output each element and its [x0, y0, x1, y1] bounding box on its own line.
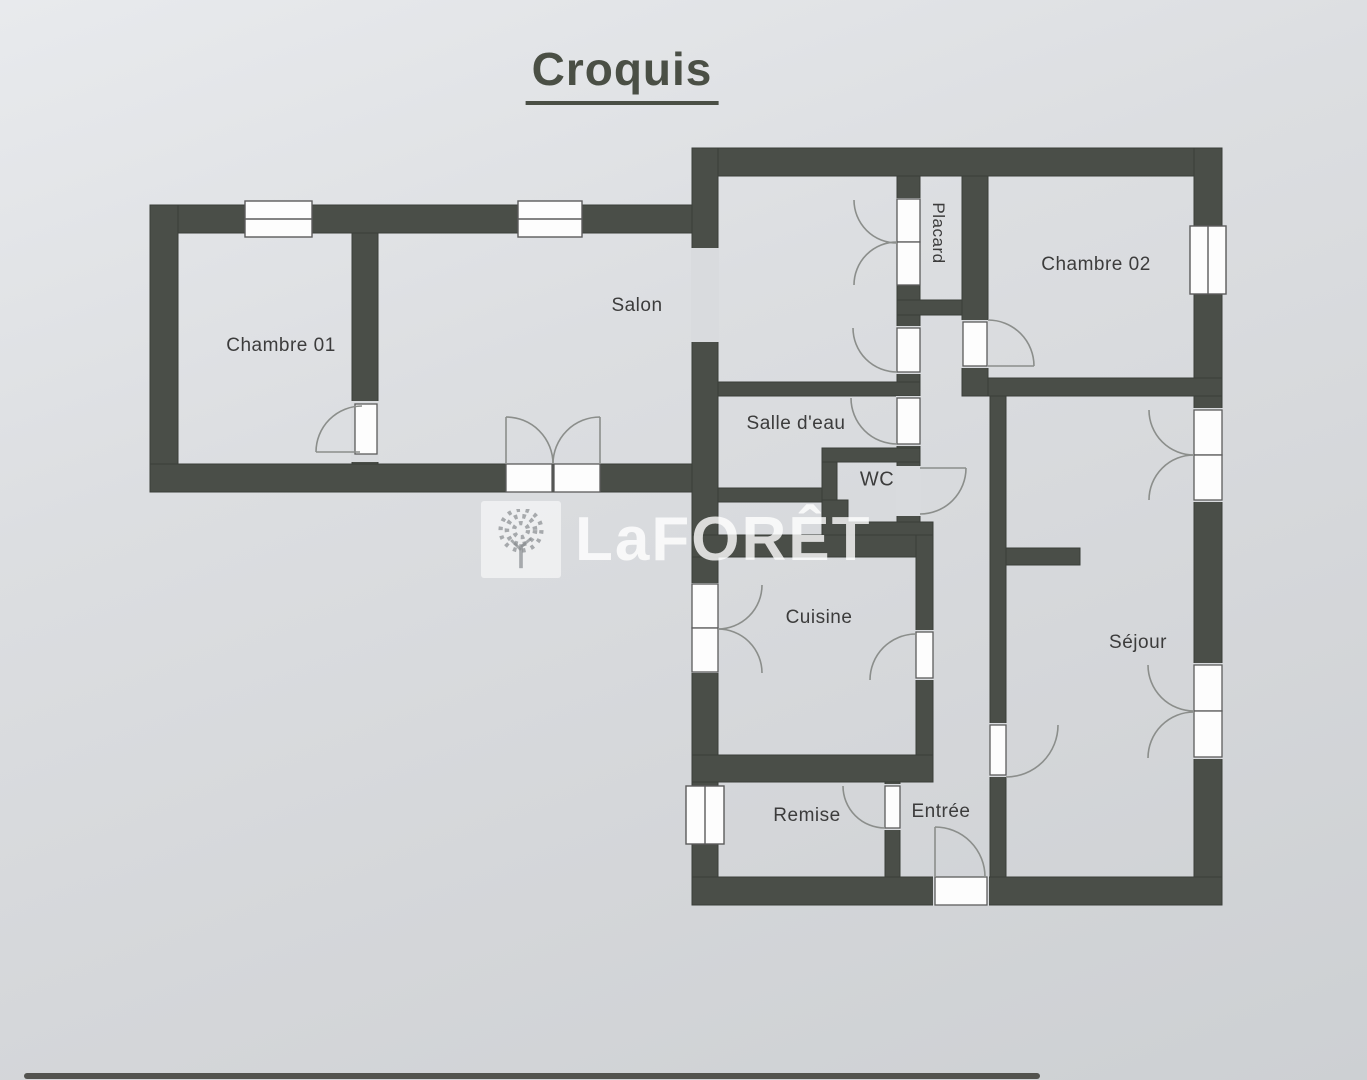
wall-salledeau-bottom: [718, 488, 822, 502]
door-arc-sejour-d1-upper: [1149, 410, 1194, 455]
room-label-chambre-02: Chambre 02: [1041, 254, 1151, 276]
door-leaf-cuisine-hall: [916, 632, 933, 678]
window-chambre01: [245, 201, 312, 237]
wall-cuisine-bottom: [692, 755, 933, 782]
door-arc-placard-upper: [854, 200, 897, 243]
door-arc-cuisine-french-upper: [718, 585, 762, 629]
door-leaf-sejour-d1-lower: [1194, 455, 1222, 500]
wall-sejour-stub: [1006, 548, 1080, 565]
door-leaf-salledeau: [897, 398, 920, 444]
door-leaf-sejour-hall: [990, 725, 1006, 775]
room-label-cuisine: Cuisine: [786, 607, 853, 629]
window-remise: [686, 786, 724, 844]
door-leaf-salon-french-left: [506, 464, 552, 492]
wall-chambre02-sejour: [988, 378, 1222, 396]
wall-left-wing-bottom: [150, 464, 700, 492]
wall-wc-left: [822, 462, 837, 506]
room-label-chambre-01: Chambre 01: [226, 335, 336, 357]
window-salon: [518, 201, 582, 237]
door-leaf-placard-lower: [897, 242, 920, 285]
wall-left-wing-left: [150, 205, 178, 492]
room-label-entree: Entrée: [912, 801, 971, 823]
floor-plan-drawing: [0, 0, 1367, 1080]
door-arc-hall-salon: [853, 328, 897, 372]
wall-wc-corner: [822, 500, 848, 535]
photo-bottom-edge-shadow: [24, 1073, 1040, 1079]
door-leaf-sejour-d1-upper: [1194, 410, 1222, 455]
door-arc-wc: [920, 468, 966, 514]
door-arc-sejour-d2-upper: [1148, 665, 1194, 711]
opening-wc-door: [896, 466, 921, 516]
window-chambre02: [1190, 226, 1226, 294]
door-leaf-cuisine-french-lower: [692, 628, 718, 672]
door-leaf-chambre02: [963, 322, 987, 366]
room-label-remise: Remise: [773, 805, 840, 827]
wall-salledeau-top: [718, 382, 920, 396]
door-leaf-entree-front: [935, 877, 987, 905]
door-leaf-hall-salon: [897, 328, 920, 372]
room-label-wc: WC: [860, 469, 894, 492]
door-arc-cuisine-hall: [870, 634, 916, 680]
door-leaf-sejour-d2-lower: [1194, 711, 1222, 757]
wall-wc-top: [822, 448, 920, 462]
door-arc-sejour-d1-lower: [1149, 455, 1194, 500]
door-arc-chambre02: [988, 320, 1034, 366]
door-leaf-chambre01: [355, 404, 377, 454]
wall-left-wing-top: [150, 205, 700, 233]
opening-salon-passage: [691, 248, 719, 342]
wall-cuisine-top: [692, 535, 933, 557]
door-arc-cuisine-french-lower: [718, 629, 762, 673]
door-arc-salledeau: [851, 398, 897, 444]
door-arc-salon-french-right: [553, 417, 600, 464]
door-arc-salon-french-left: [506, 417, 553, 464]
wall-sejour-left: [990, 396, 1006, 877]
door-leaf-cuisine-french-upper: [692, 584, 718, 628]
room-label-salle-deau: Salle d'eau: [747, 413, 846, 435]
floor-plan-photo: Croquis: [0, 0, 1367, 1080]
door-arc-entree-front: [935, 827, 985, 877]
door-arc-remise: [843, 786, 885, 828]
door-arc-sejour-hall: [1006, 725, 1058, 777]
windows: [245, 201, 1226, 844]
door-arc-sejour-d2-lower: [1148, 712, 1194, 758]
room-label-salon: Salon: [611, 295, 662, 317]
door-arc-placard-lower: [854, 242, 897, 285]
wall-wc-bottom: [848, 522, 933, 535]
room-label-sejour: Séjour: [1109, 632, 1167, 654]
door-leaf-placard-upper: [897, 199, 920, 242]
door-leaf-remise: [885, 786, 900, 828]
door-leaf-sejour-d2-upper: [1194, 665, 1222, 711]
room-label-placard: Placard: [928, 202, 948, 263]
wall-central-top: [692, 148, 1222, 176]
door-leaf-salon-french-right: [554, 464, 600, 492]
